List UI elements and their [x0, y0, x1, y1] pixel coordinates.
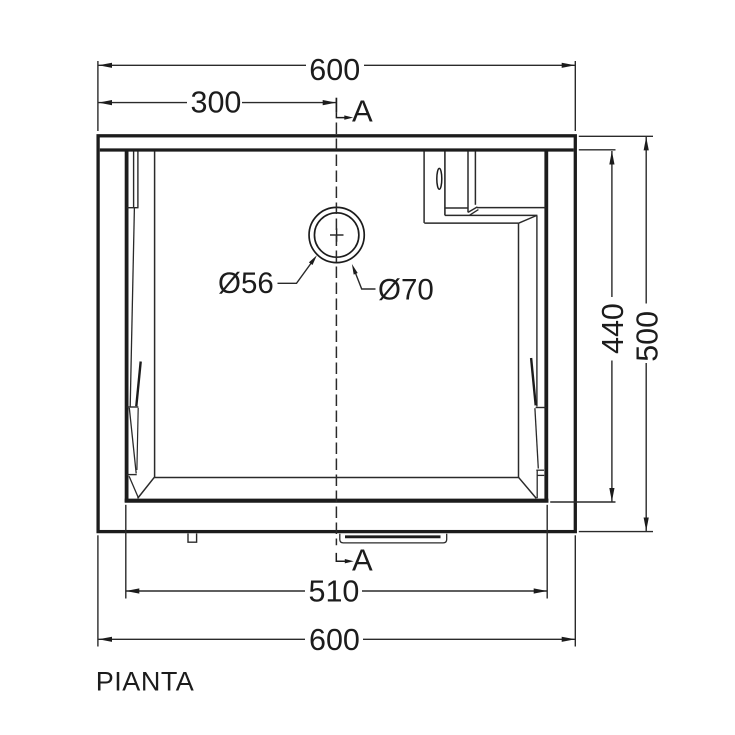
svg-text:500: 500: [630, 311, 664, 362]
svg-text:A: A: [352, 543, 373, 578]
svg-text:440: 440: [596, 303, 630, 354]
svg-text:600: 600: [309, 623, 360, 657]
svg-text:Ø70: Ø70: [378, 274, 434, 307]
svg-text:A: A: [352, 94, 373, 129]
svg-text:510: 510: [309, 574, 360, 608]
svg-text:300: 300: [191, 85, 242, 119]
svg-text:PIANTA: PIANTA: [96, 667, 195, 697]
svg-text:Ø56: Ø56: [218, 267, 274, 300]
svg-text:600: 600: [309, 53, 360, 87]
